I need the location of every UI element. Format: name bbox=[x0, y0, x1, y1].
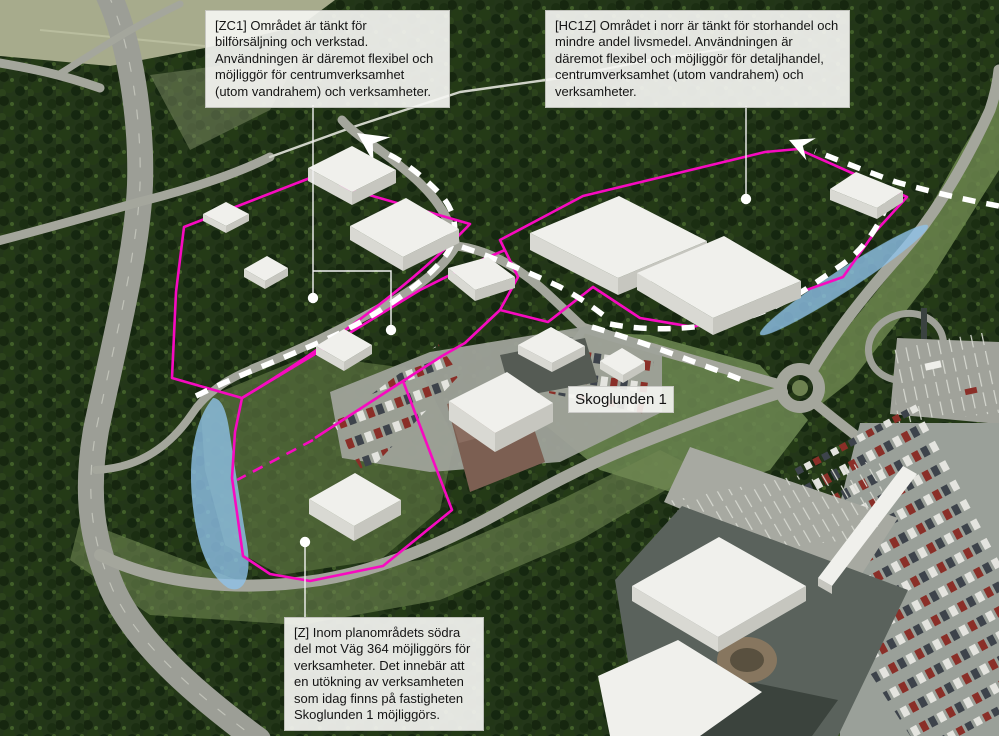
leader-dot bbox=[308, 293, 318, 303]
leader-dot bbox=[386, 325, 396, 335]
callout-hc1z: [HC1Z] Området i norr är tänkt för storh… bbox=[545, 10, 850, 108]
aerial-basemap bbox=[0, 0, 999, 736]
property-label-skoglunden: Skoglunden 1 bbox=[568, 386, 674, 413]
callout-zc1: [ZC1] Området är tänkt för bilförsäljnin… bbox=[205, 10, 450, 108]
aerial-map-figure: [ZC1] Området är tänkt för bilförsäljnin… bbox=[0, 0, 999, 736]
callout-z: [Z] Inom planområdets södra del mot Väg … bbox=[284, 617, 484, 731]
roundabout bbox=[781, 369, 819, 407]
leader-dot bbox=[300, 537, 310, 547]
leader-dot bbox=[741, 194, 751, 204]
